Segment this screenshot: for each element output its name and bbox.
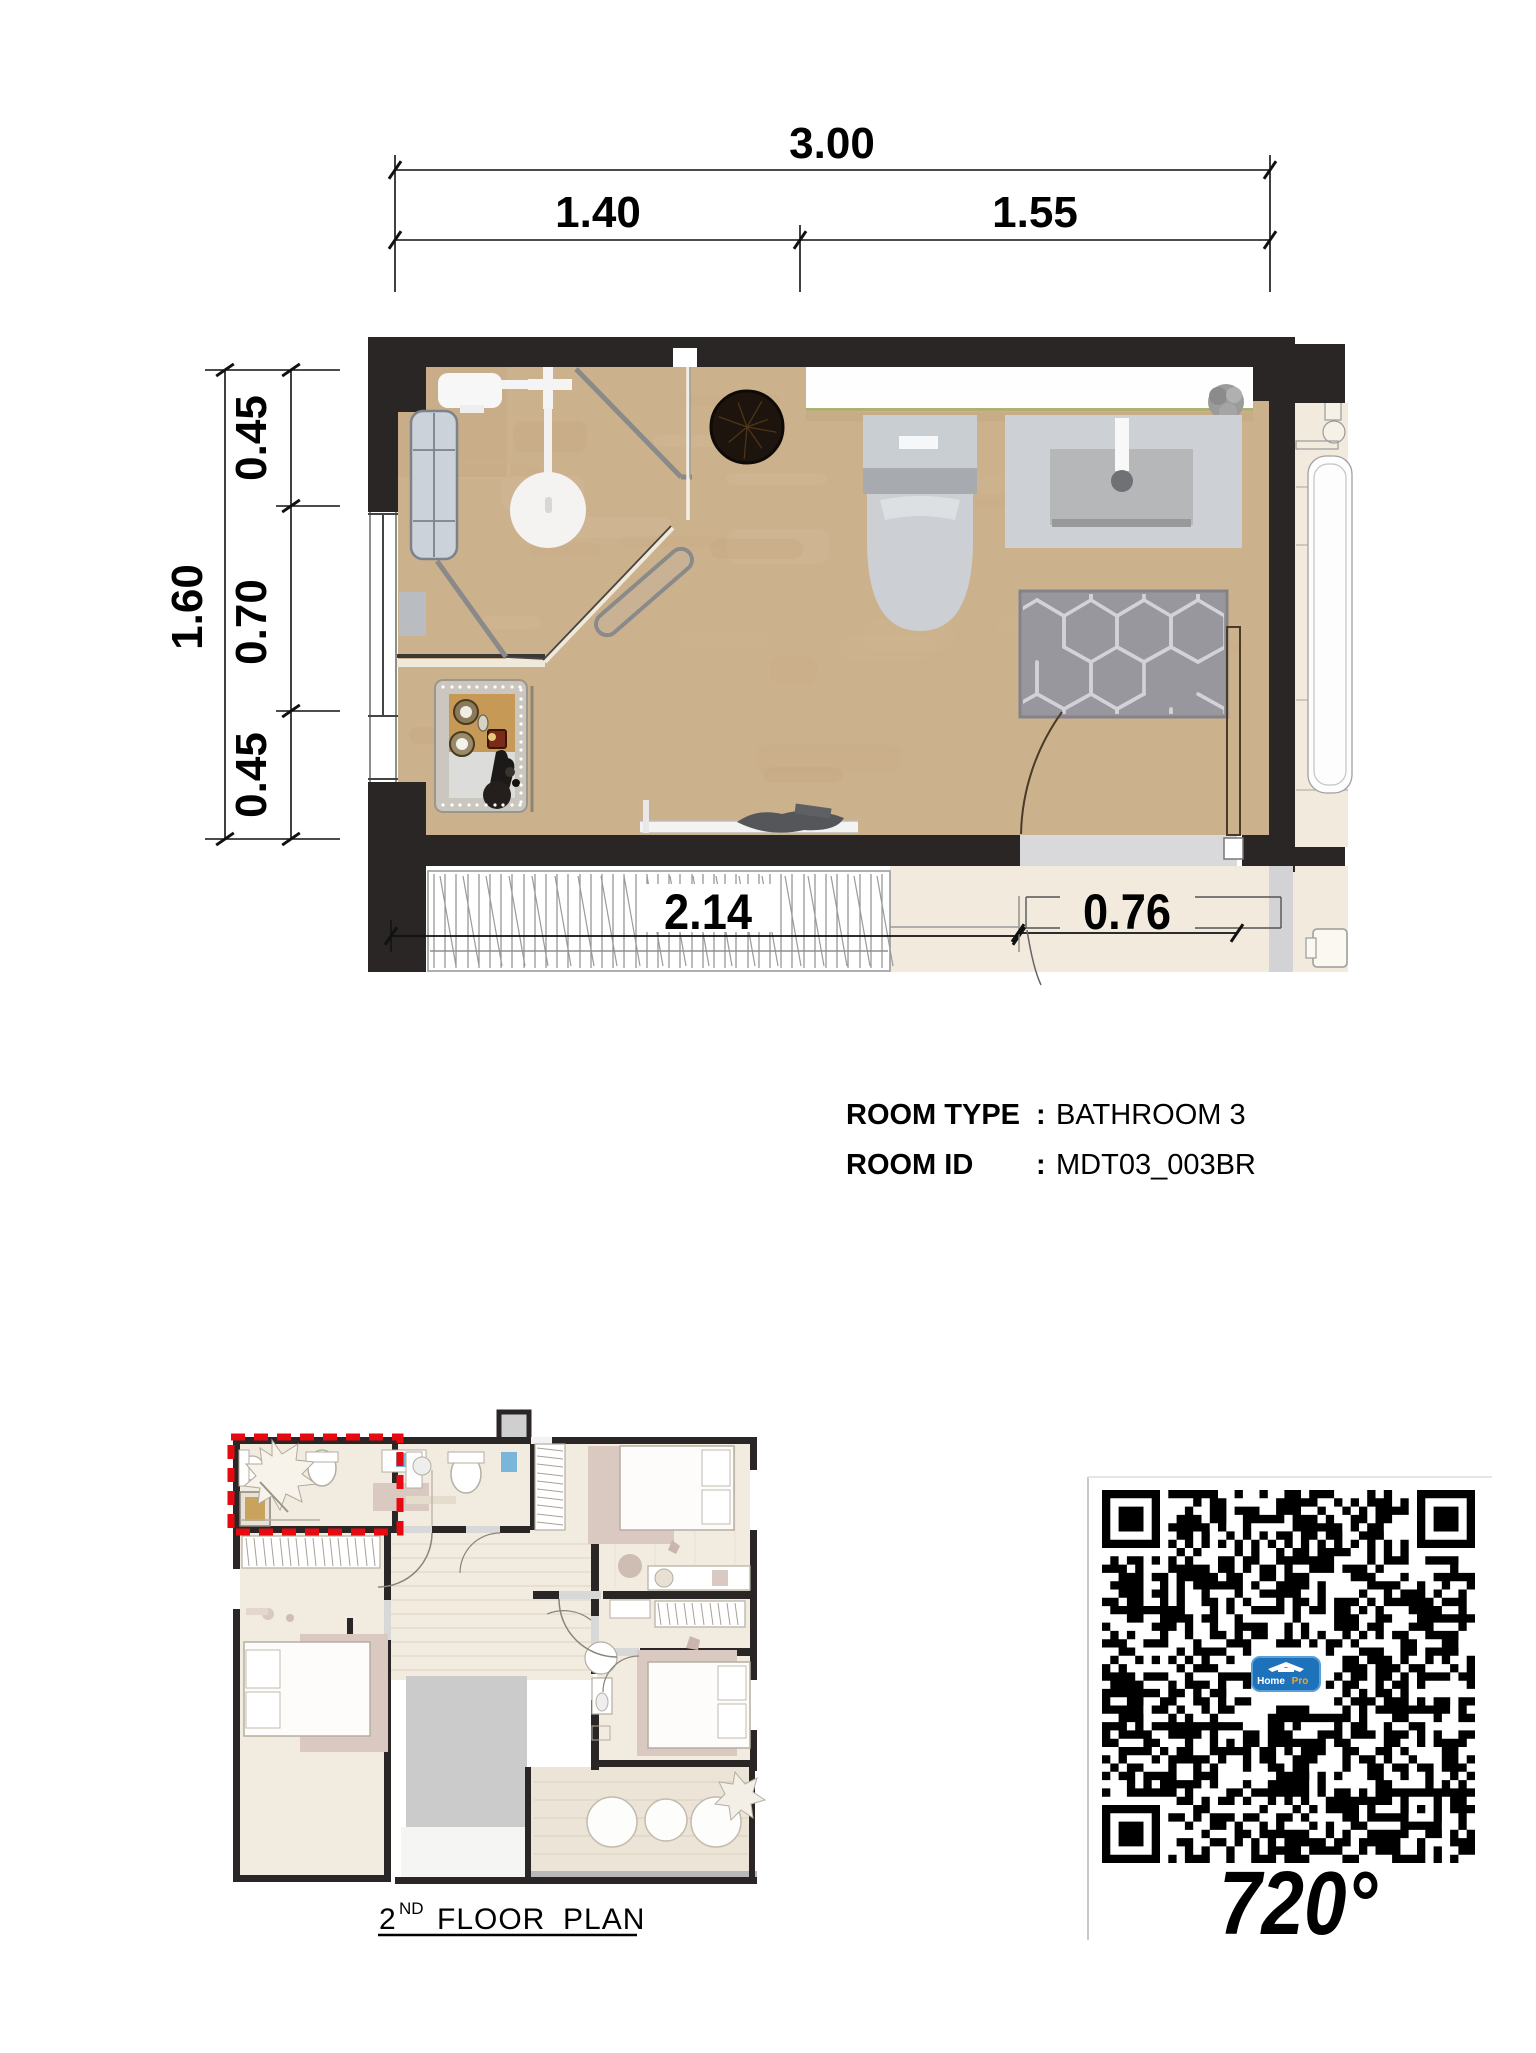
svg-text:ND: ND [399, 1899, 424, 1918]
svg-text:FLOOR: FLOOR [437, 1903, 545, 1936]
svg-text:BATHROOM 3: BATHROOM 3 [1056, 1099, 1246, 1131]
svg-text:ROOM ID: ROOM ID [846, 1149, 973, 1181]
svg-text:2: 2 [379, 1903, 396, 1936]
svg-text:Pro: Pro [1292, 1676, 1309, 1687]
svg-text:1.60: 1.60 [163, 564, 212, 650]
svg-text:0.45: 0.45 [227, 395, 276, 481]
svg-text:MDT03_003BR: MDT03_003BR [1056, 1149, 1256, 1181]
svg-text:720°: 720° [1219, 1854, 1378, 1954]
svg-text:2.14: 2.14 [664, 884, 752, 940]
svg-text:1.40: 1.40 [555, 188, 641, 237]
svg-text::: : [1036, 1149, 1046, 1181]
svg-text:0.45: 0.45 [227, 732, 276, 818]
svg-text:0.70: 0.70 [227, 579, 276, 665]
svg-text:PLAN: PLAN [563, 1903, 645, 1936]
svg-text:ROOM TYPE: ROOM TYPE [846, 1099, 1020, 1131]
svg-text::: : [1036, 1099, 1046, 1131]
svg-text:0.76: 0.76 [1083, 884, 1171, 940]
svg-text:Home: Home [1257, 1676, 1285, 1687]
svg-text:1.55: 1.55 [992, 188, 1078, 237]
svg-text:3.00: 3.00 [789, 119, 875, 168]
